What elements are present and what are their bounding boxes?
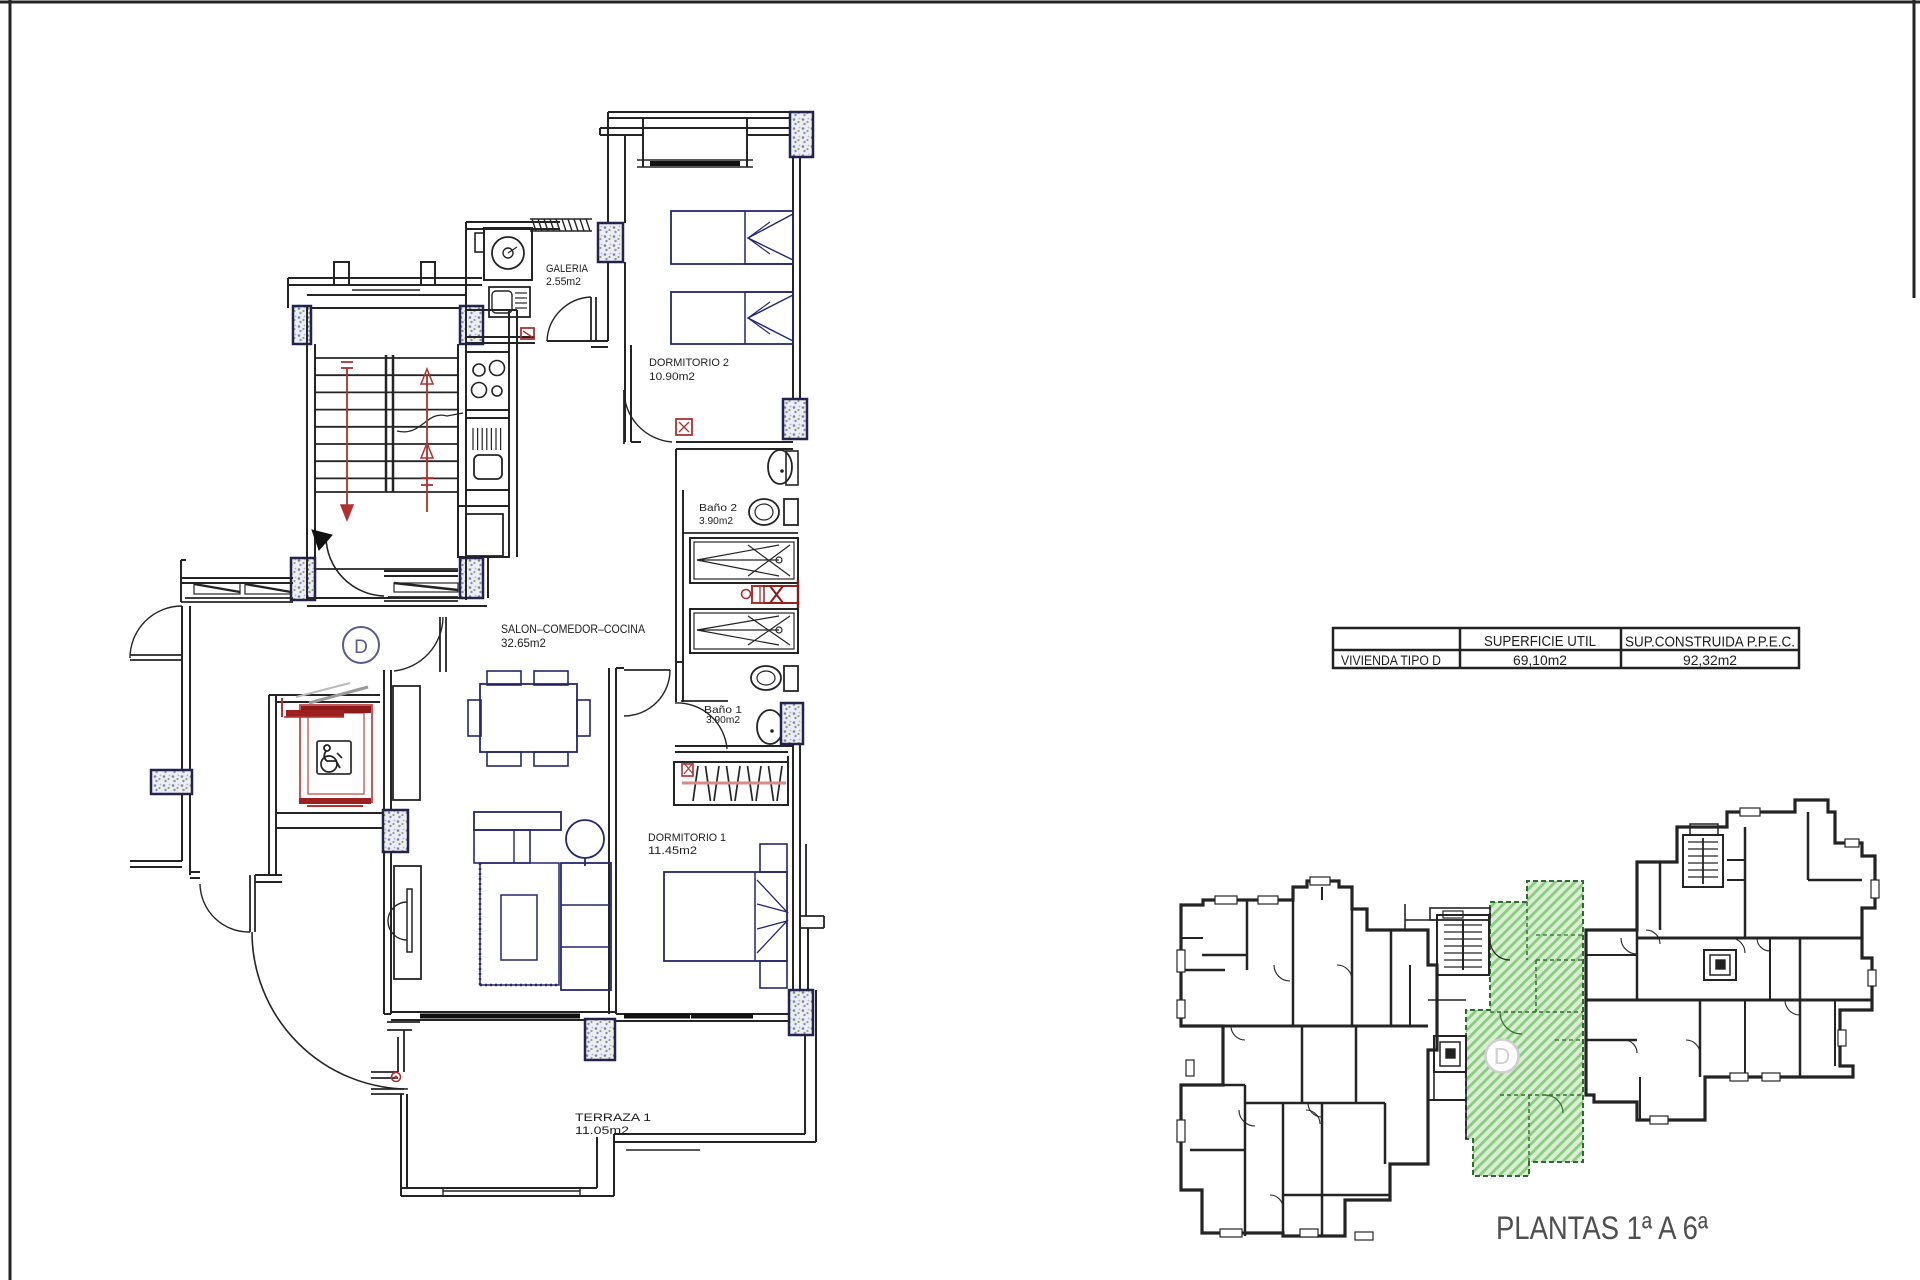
svg-text:VIVIENDA TIPO D: VIVIENDA TIPO D <box>1341 653 1441 668</box>
svg-text:SUPERFICIE UTIL: SUPERFICIE UTIL <box>1484 633 1596 650</box>
svg-text:3.90m2: 3.90m2 <box>699 515 733 527</box>
svg-text:3.90m2: 3.90m2 <box>706 714 740 726</box>
svg-text:D: D <box>354 637 368 658</box>
svg-text:PLANTAS 1ª A 6ª: PLANTAS 1ª A 6ª <box>1496 1210 1708 1246</box>
svg-text:11.05m2: 11.05m2 <box>575 1125 629 1137</box>
svg-text:DORMITORIO 1: DORMITORIO 1 <box>648 832 726 844</box>
svg-text:GALERIA: GALERIA <box>546 263 589 275</box>
svg-text:DORMITORIO 2: DORMITORIO 2 <box>649 357 729 369</box>
svg-text:D: D <box>1494 1043 1511 1069</box>
svg-text:92,32m2: 92,32m2 <box>1683 653 1737 668</box>
svg-text:10.90m2: 10.90m2 <box>649 371 695 383</box>
svg-text:SUP.CONSTRUIDA P.P.E.C.: SUP.CONSTRUIDA P.P.E.C. <box>1625 635 1795 651</box>
svg-text:69,10m2: 69,10m2 <box>1513 653 1567 668</box>
svg-text:2.55m2: 2.55m2 <box>546 276 581 288</box>
svg-text:32.65m2: 32.65m2 <box>501 638 546 650</box>
svg-text:SALON–COMEDOR–COCINA: SALON–COMEDOR–COCINA <box>501 624 645 636</box>
svg-text:11.45m2: 11.45m2 <box>648 845 697 857</box>
svg-text:Baño 2: Baño 2 <box>699 502 737 514</box>
svg-text:TERRAZA 1: TERRAZA 1 <box>575 1112 651 1124</box>
